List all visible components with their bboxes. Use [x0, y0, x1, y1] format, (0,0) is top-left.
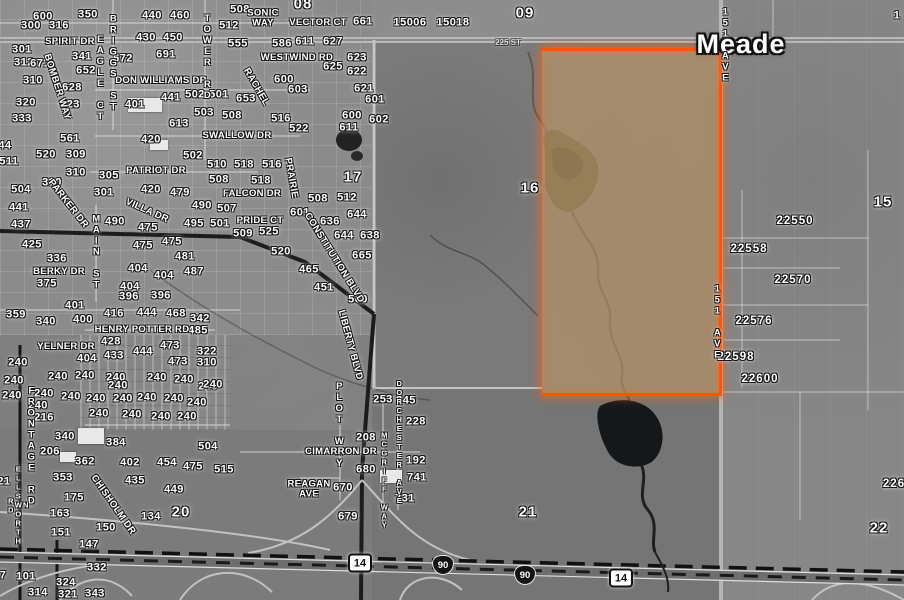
aerial-urban-grid — [0, 0, 372, 335]
map-canvas[interactable]: Meade 225 ST 600350440460300316508512430… — [0, 0, 904, 600]
building — [380, 470, 402, 483]
address-label: 240 — [34, 388, 54, 399]
aerial-fields-east — [722, 0, 904, 600]
address-label: 240 — [4, 375, 24, 386]
address-label: 240 — [8, 357, 28, 368]
building — [60, 452, 76, 462]
address-label: 240 — [2, 390, 22, 401]
address-label: 240 — [48, 371, 68, 382]
aerial-section16-west — [372, 40, 542, 390]
address-label: 216 — [34, 412, 54, 423]
aerial-rural-southwest — [0, 430, 372, 600]
aerial-trailer-park — [80, 335, 230, 430]
building — [150, 140, 168, 150]
address-label: 240 — [28, 400, 48, 411]
aerial-section21 — [372, 390, 722, 600]
selected-parcel-highlight[interactable] — [542, 48, 722, 396]
building — [78, 428, 104, 444]
school-building — [128, 98, 162, 112]
address-label: 240 — [61, 391, 81, 402]
